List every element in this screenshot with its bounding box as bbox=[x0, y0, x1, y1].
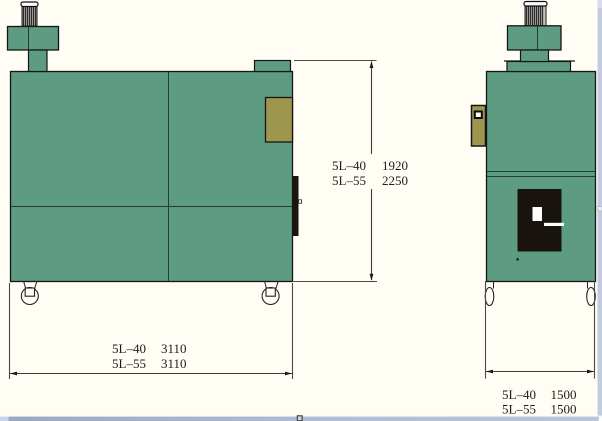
svg-text:5L–55: 5L–55 bbox=[332, 173, 366, 188]
svg-text:2250: 2250 bbox=[382, 173, 408, 188]
svg-text:5L–55: 5L–55 bbox=[502, 402, 536, 417]
svg-text:3110: 3110 bbox=[161, 356, 187, 371]
svg-text:5L–55: 5L–55 bbox=[112, 356, 146, 371]
svg-text:5L–40: 5L–40 bbox=[112, 341, 146, 356]
svg-text:1500: 1500 bbox=[551, 387, 577, 402]
svg-text:5L–40: 5L–40 bbox=[502, 387, 536, 402]
svg-text:3110: 3110 bbox=[161, 341, 187, 356]
svg-text:1500: 1500 bbox=[551, 402, 577, 417]
svg-text:5L–40: 5L–40 bbox=[332, 158, 366, 173]
svg-text:1920: 1920 bbox=[382, 158, 408, 173]
